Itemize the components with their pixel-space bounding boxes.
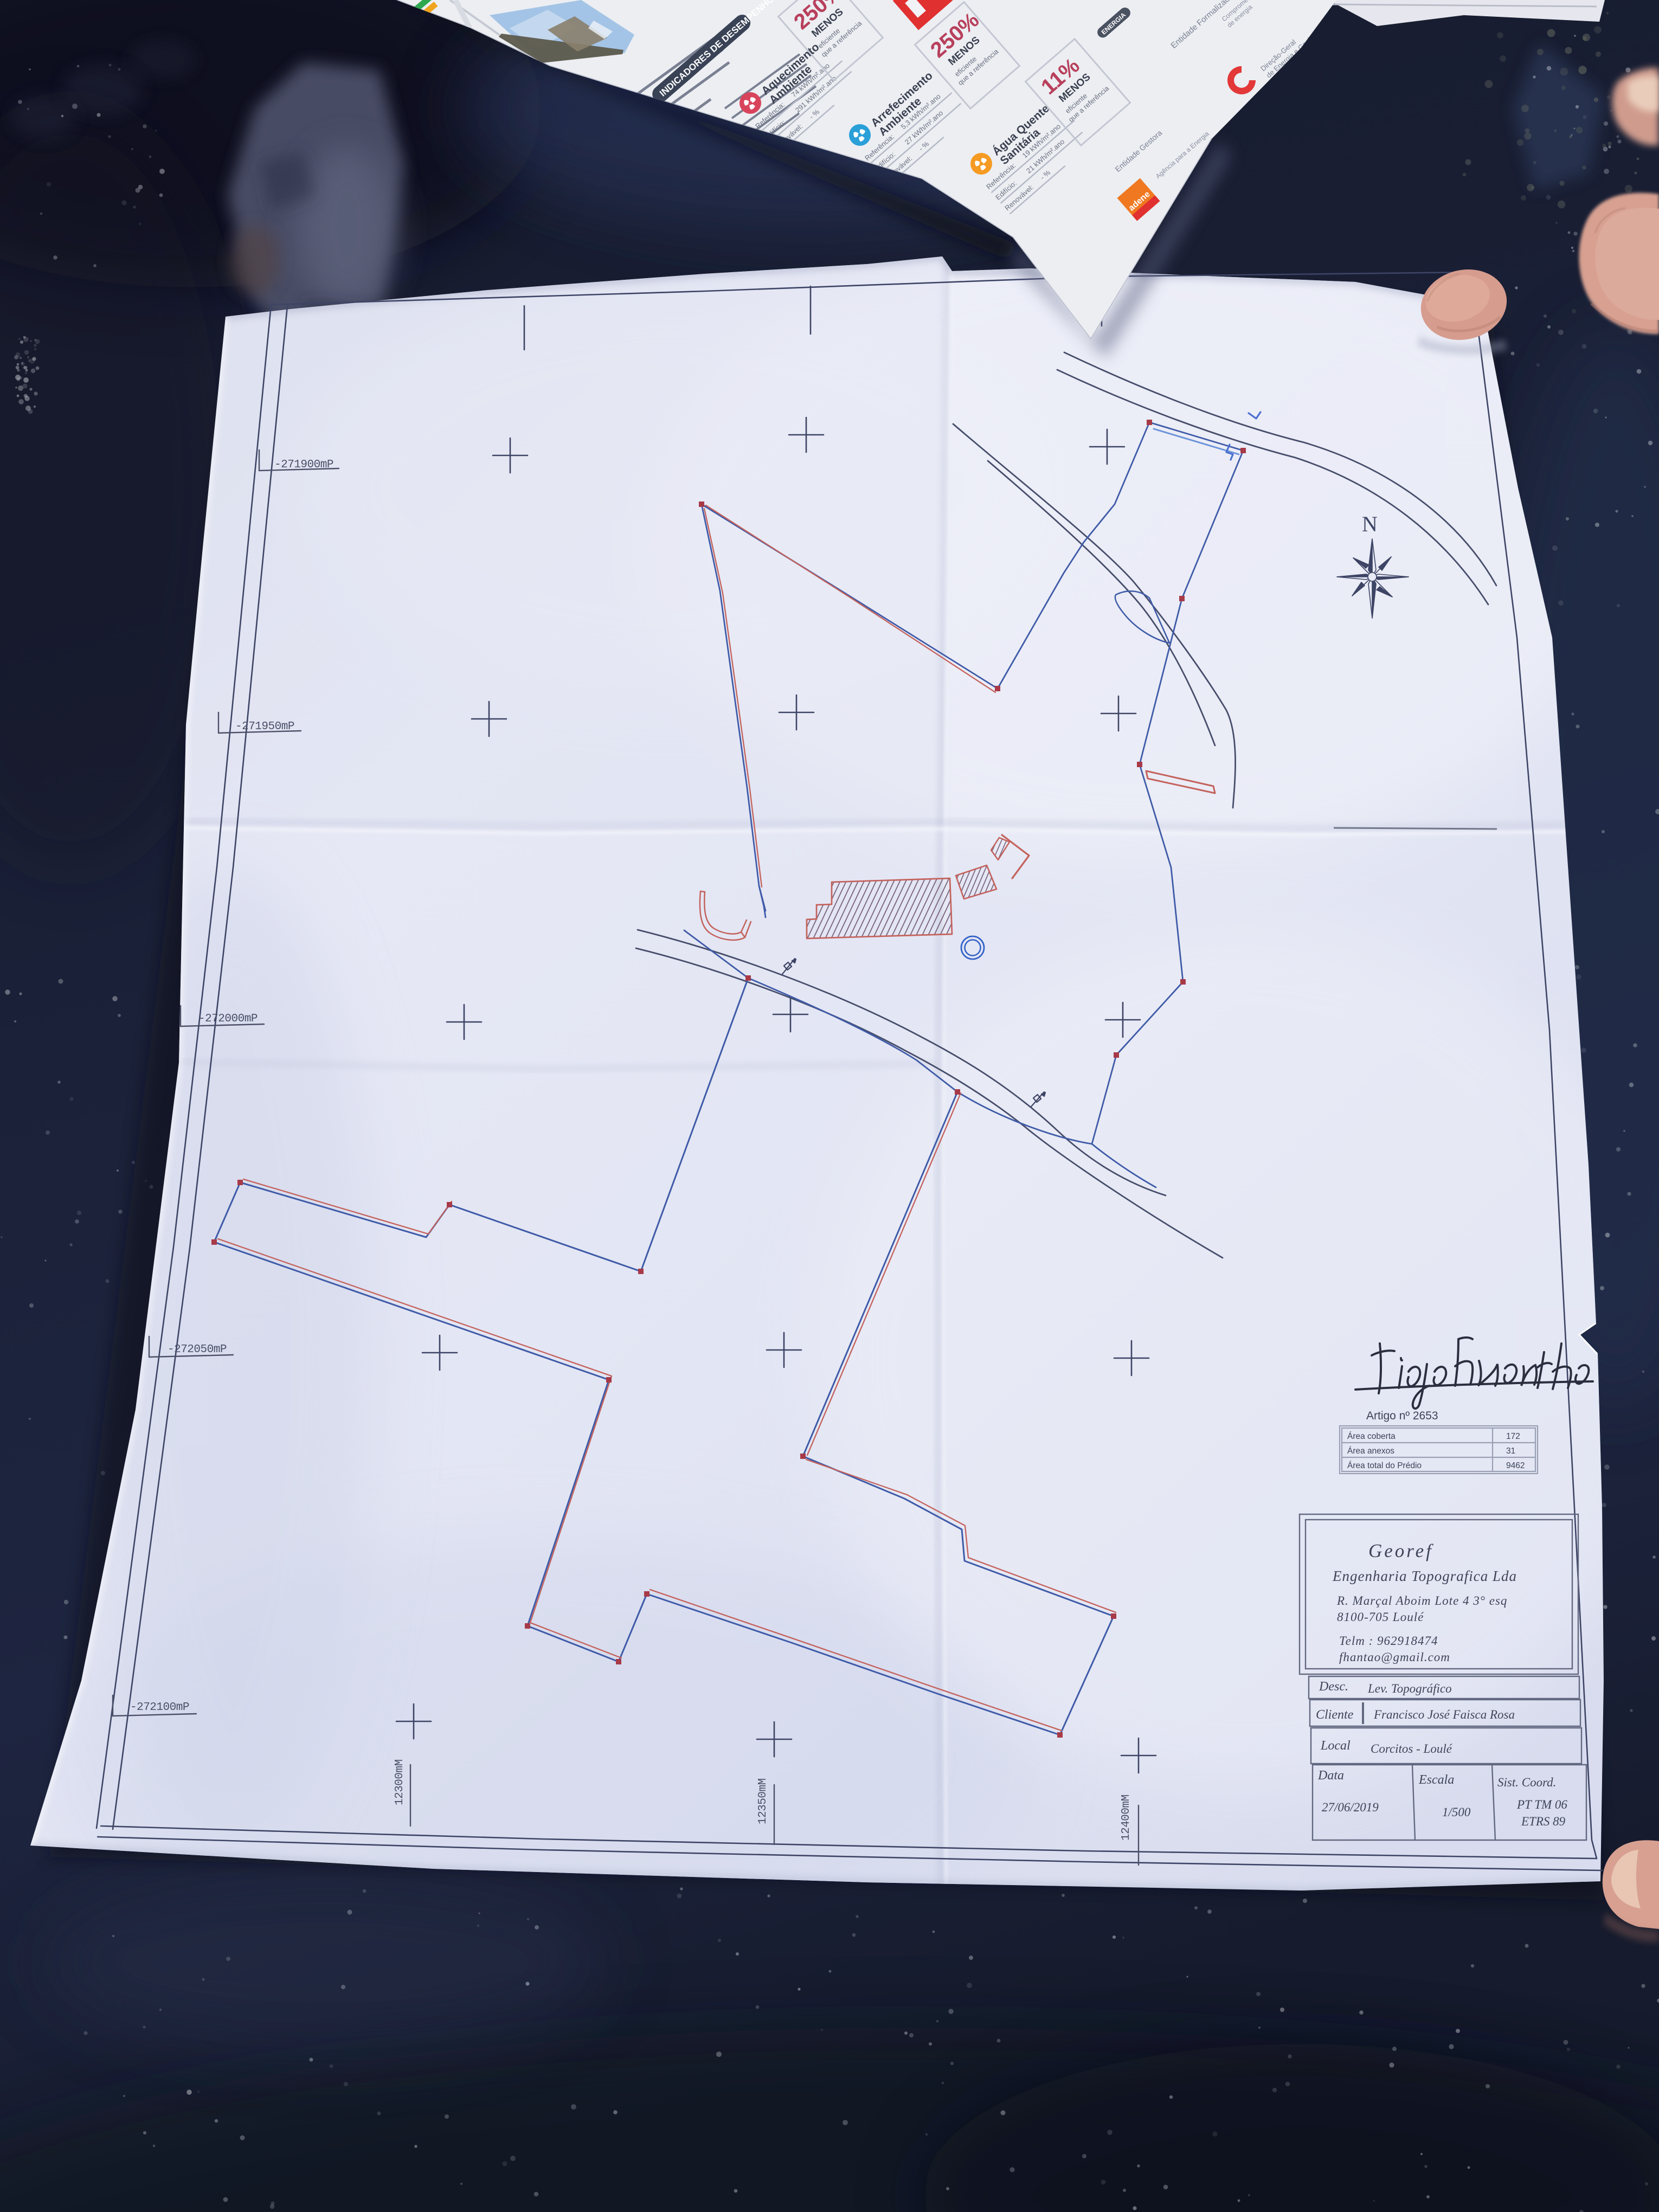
svg-text:ETRS 89: ETRS 89 <box>1521 1815 1566 1828</box>
svg-text:Data: Data <box>1317 1769 1344 1783</box>
svg-text:Engenharia Topografica Lda: Engenharia Topografica Lda <box>1332 1568 1517 1584</box>
svg-text:Cliente: Cliente <box>1316 1708 1354 1722</box>
svg-text:fhantao@gmail.com: fhantao@gmail.com <box>1339 1650 1450 1664</box>
svg-text:Desc.: Desc. <box>1319 1680 1348 1694</box>
svg-text:-272100mP: -272100mP <box>130 1701 189 1714</box>
svg-text:Área anexos: Área anexos <box>1347 1446 1394 1456</box>
svg-text:N: N <box>1362 512 1378 536</box>
svg-text:-272000mP: -272000mP <box>198 1013 258 1025</box>
svg-text:27/06/2019: 27/06/2019 <box>1322 1801 1379 1814</box>
svg-text:PT TM 06: PT TM 06 <box>1516 1798 1567 1811</box>
svg-text:8100-705 Loulé: 8100-705 Loulé <box>1337 1610 1424 1624</box>
svg-text:172: 172 <box>1506 1432 1520 1441</box>
svg-text:1/500: 1/500 <box>1442 1805 1471 1819</box>
svg-text:-272050mP: -272050mP <box>168 1343 227 1356</box>
svg-text:9462: 9462 <box>1506 1461 1525 1470</box>
svg-text:Local: Local <box>1320 1739 1351 1753</box>
svg-text:Corcitos - Loulé: Corcitos - Loulé <box>1371 1742 1453 1756</box>
svg-text:Francisco José Faisca Rosa: Francisco José Faisca Rosa <box>1373 1708 1515 1721</box>
svg-text:Escala: Escala <box>1418 1773 1454 1787</box>
svg-text:Georef: Georef <box>1368 1540 1433 1561</box>
svg-text:Artigo nº 2653: Artigo nº 2653 <box>1366 1410 1438 1422</box>
svg-text:31: 31 <box>1506 1446 1515 1456</box>
svg-text:Telm : 962918474: Telm : 962918474 <box>1339 1634 1438 1648</box>
svg-text:Área total do Prédio: Área total do Prédio <box>1347 1461 1422 1470</box>
svg-text:Lev. Topográfico: Lev. Topográfico <box>1367 1682 1452 1695</box>
svg-text:Área coberta: Área coberta <box>1347 1432 1396 1441</box>
svg-text:Sist. Coord.: Sist. Coord. <box>1497 1776 1556 1789</box>
svg-text:12400mM: 12400mM <box>1120 1795 1133 1841</box>
svg-text:R. Marçal Aboim Lote 4 3° esq: R. Marçal Aboim Lote 4 3° esq <box>1336 1594 1507 1607</box>
svg-text:12300mM: 12300mM <box>394 1759 406 1805</box>
svg-text:12350mM: 12350mM <box>757 1778 769 1824</box>
